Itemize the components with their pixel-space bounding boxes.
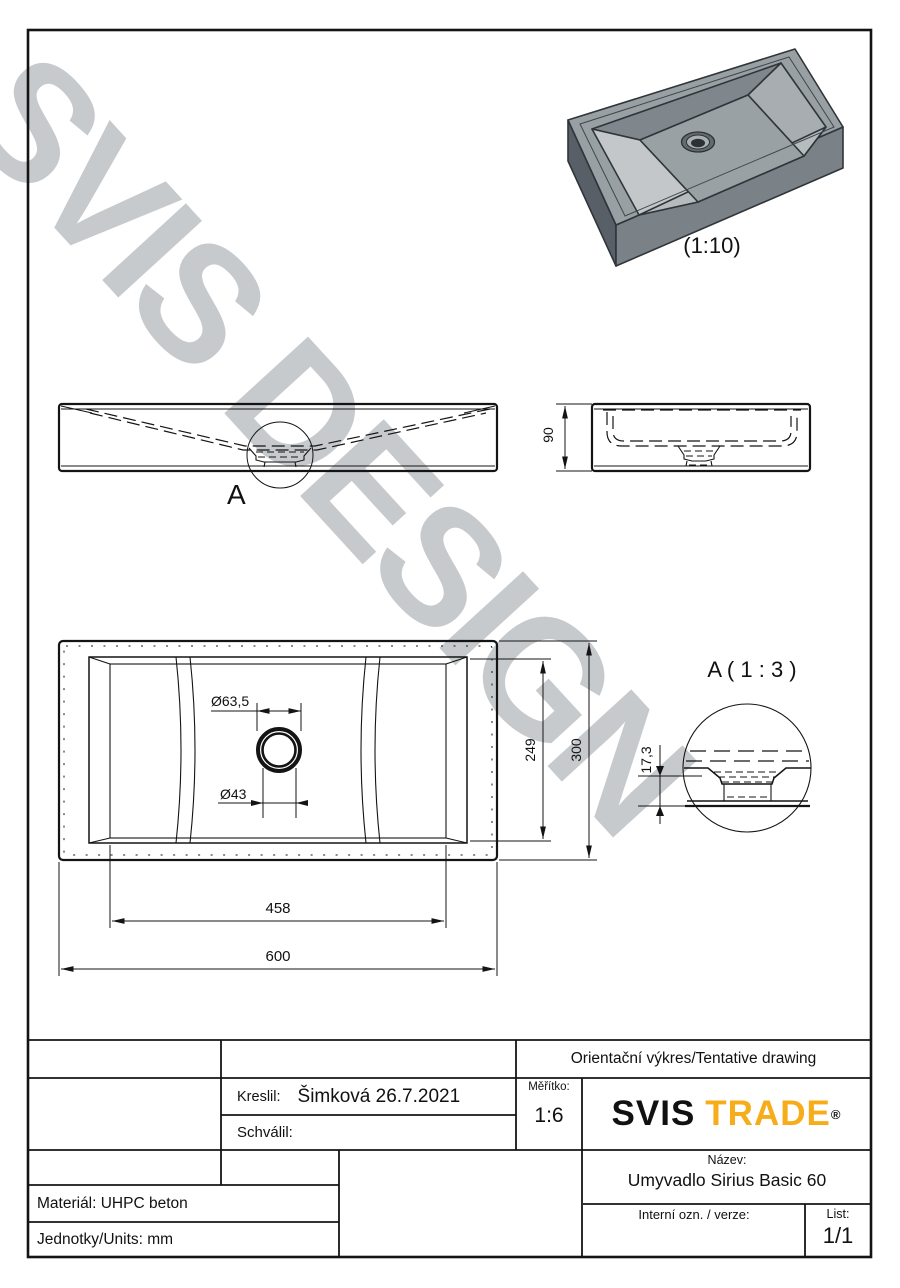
dim-458: 458: [110, 845, 446, 928]
svg-text:300: 300: [568, 738, 584, 762]
name-value: Umyvadlo Sirius Basic 60: [628, 1170, 826, 1191]
svg-text:Ø43: Ø43: [220, 786, 247, 802]
approved-by-label: Schválil:: [221, 1115, 516, 1150]
svg-text:249: 249: [522, 738, 538, 762]
front-view: A: [59, 404, 497, 510]
drawing-sheet: SVIS DESIGN (1:1: [0, 0, 900, 1288]
svg-text:600: 600: [265, 948, 290, 965]
name-label: Název:: [708, 1153, 747, 1167]
scale-label: Měřítko:: [528, 1081, 570, 1093]
name-cell: Název: Umyvadlo Sirius Basic 60: [583, 1150, 871, 1204]
iso-scale-label: (1:10): [683, 233, 740, 258]
sheet-cell: List: 1/1: [805, 1204, 871, 1257]
sheet-label: List:: [827, 1207, 850, 1221]
svg-text:458: 458: [265, 900, 290, 917]
units-note: Jednotky/Units: mm: [28, 1222, 339, 1257]
drain-iso: [682, 132, 715, 152]
dim-90: 90: [540, 404, 592, 471]
detail-title: A ( 1 : 3 ): [707, 657, 796, 682]
dim-drain-outer: Ø63,5: [211, 693, 301, 731]
drawn-by-value: Šimková 26.7.2021: [298, 1086, 461, 1108]
svis-trade-logo: SVIS TRADE ®: [582, 1078, 871, 1150]
tentative-drawing-note: Orientační výkres/Tentative drawing: [516, 1040, 871, 1078]
isometric-view: (1:10): [568, 49, 843, 266]
dim-drain-hole: Ø43: [218, 768, 308, 818]
plan-view: Ø63,5 Ø43 249: [59, 641, 597, 976]
dim-17-3: 17,3: [638, 745, 702, 824]
drawn-by-label: Kreslil:: [237, 1089, 281, 1105]
detail-callout-circle: [247, 422, 313, 488]
registered-mark: ®: [831, 1107, 842, 1122]
svg-text:Ø63,5: Ø63,5: [211, 693, 249, 709]
svg-text:90: 90: [540, 427, 556, 443]
internal-id-label: Interní ozn. / verze:: [638, 1207, 749, 1222]
logo-svis: SVIS: [612, 1094, 696, 1134]
sheet-value: 1/1: [823, 1223, 854, 1249]
drain-hole-circle: [263, 734, 296, 767]
drain-outer-circle: [258, 729, 300, 771]
drawn-by-row: Kreslil: Šimková 26.7.2021: [221, 1078, 516, 1115]
dim-249: 249: [470, 659, 551, 841]
dim-600: 600: [59, 862, 497, 976]
svg-text:17,3: 17,3: [638, 746, 654, 773]
internal-id-cell: Interní ozn. / verze:: [583, 1204, 805, 1257]
scale-value: 1:6: [534, 1104, 563, 1128]
dim-300: 300: [499, 641, 597, 860]
scale-cell: Měřítko: 1:6: [516, 1078, 582, 1150]
detail-mark-label: A: [227, 479, 246, 510]
material-note: Materiál: UHPC beton: [28, 1185, 339, 1222]
side-view: 90: [540, 404, 810, 471]
detail-view: A ( 1 : 3 ) 17,3: [638, 657, 811, 832]
logo-trade: TRADE: [705, 1094, 831, 1134]
